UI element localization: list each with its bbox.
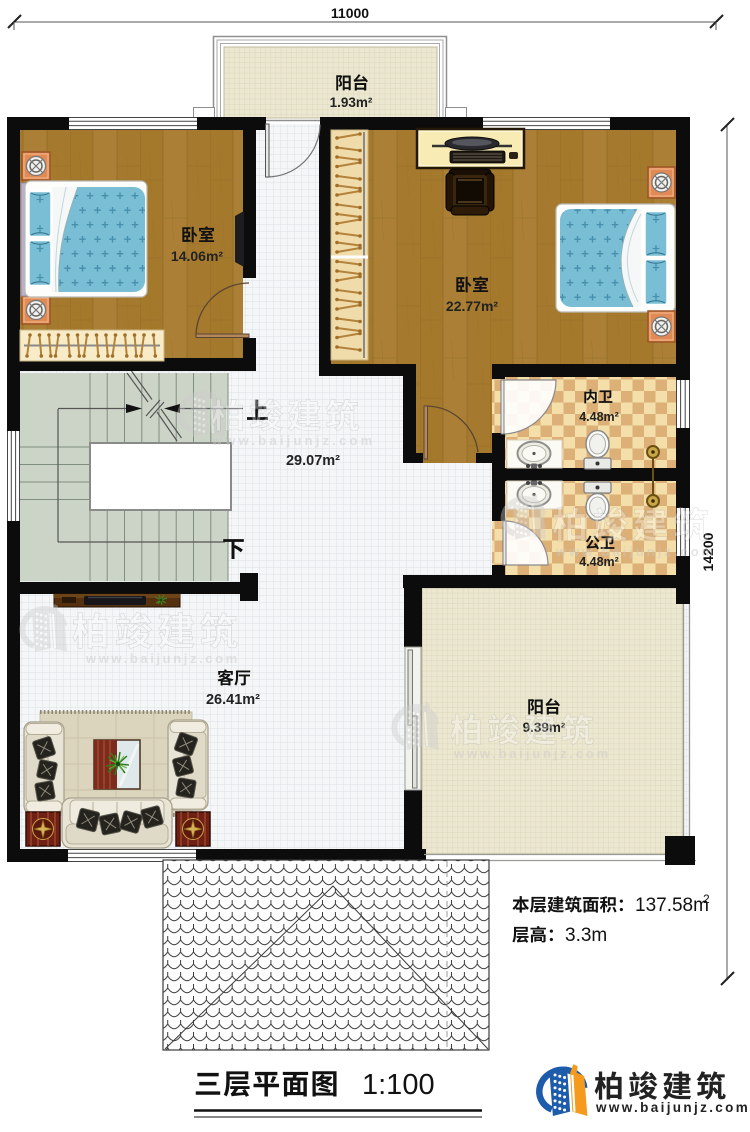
svg-text:www.baijunjz.com: www.baijunjz.com (85, 651, 240, 666)
svg-text:29.07m²: 29.07m² (286, 453, 340, 469)
svg-text:www.baijunjz.com: www.baijunjz.com (211, 433, 375, 448)
svg-text:www.baijunjz.com: www.baijunjz.com (555, 544, 716, 559)
svg-text:3.3m: 3.3m (565, 925, 607, 946)
svg-text:14.06m²: 14.06m² (171, 248, 223, 264)
svg-text:22.77m²: 22.77m² (446, 298, 498, 314)
svg-text:11000: 11000 (331, 5, 369, 21)
svg-text:1.93m²: 1.93m² (330, 95, 373, 110)
svg-text:26.41m²: 26.41m² (206, 692, 260, 708)
svg-text:www.baijunjz.com: www.baijunjz.com (595, 1100, 750, 1115)
svg-text:1:100: 1:100 (362, 1069, 435, 1101)
svg-text:4.48m²: 4.48m² (579, 410, 619, 424)
svg-text:137.58m: 137.58m (635, 895, 709, 916)
svg-text:2: 2 (703, 892, 710, 906)
svg-text:www.baijunjz.com: www.baijunjz.com (453, 746, 611, 761)
